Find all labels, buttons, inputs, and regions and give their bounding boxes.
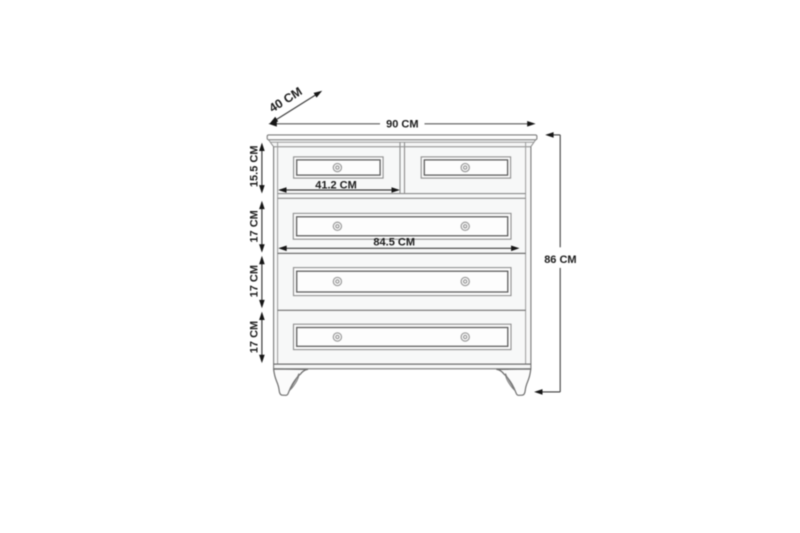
svg-text:86 CM: 86 CM: [544, 254, 576, 266]
svg-text:84.5 CM: 84.5 CM: [373, 237, 415, 249]
svg-text:41.2 CM: 41.2 CM: [315, 180, 357, 192]
svg-text:90 CM: 90 CM: [386, 118, 418, 130]
svg-text:17 CM: 17 CM: [249, 321, 261, 353]
svg-text:17 CM: 17 CM: [249, 265, 261, 297]
svg-text:17 CM: 17 CM: [249, 210, 261, 242]
svg-text:15.5 CM: 15.5 CM: [248, 146, 260, 188]
